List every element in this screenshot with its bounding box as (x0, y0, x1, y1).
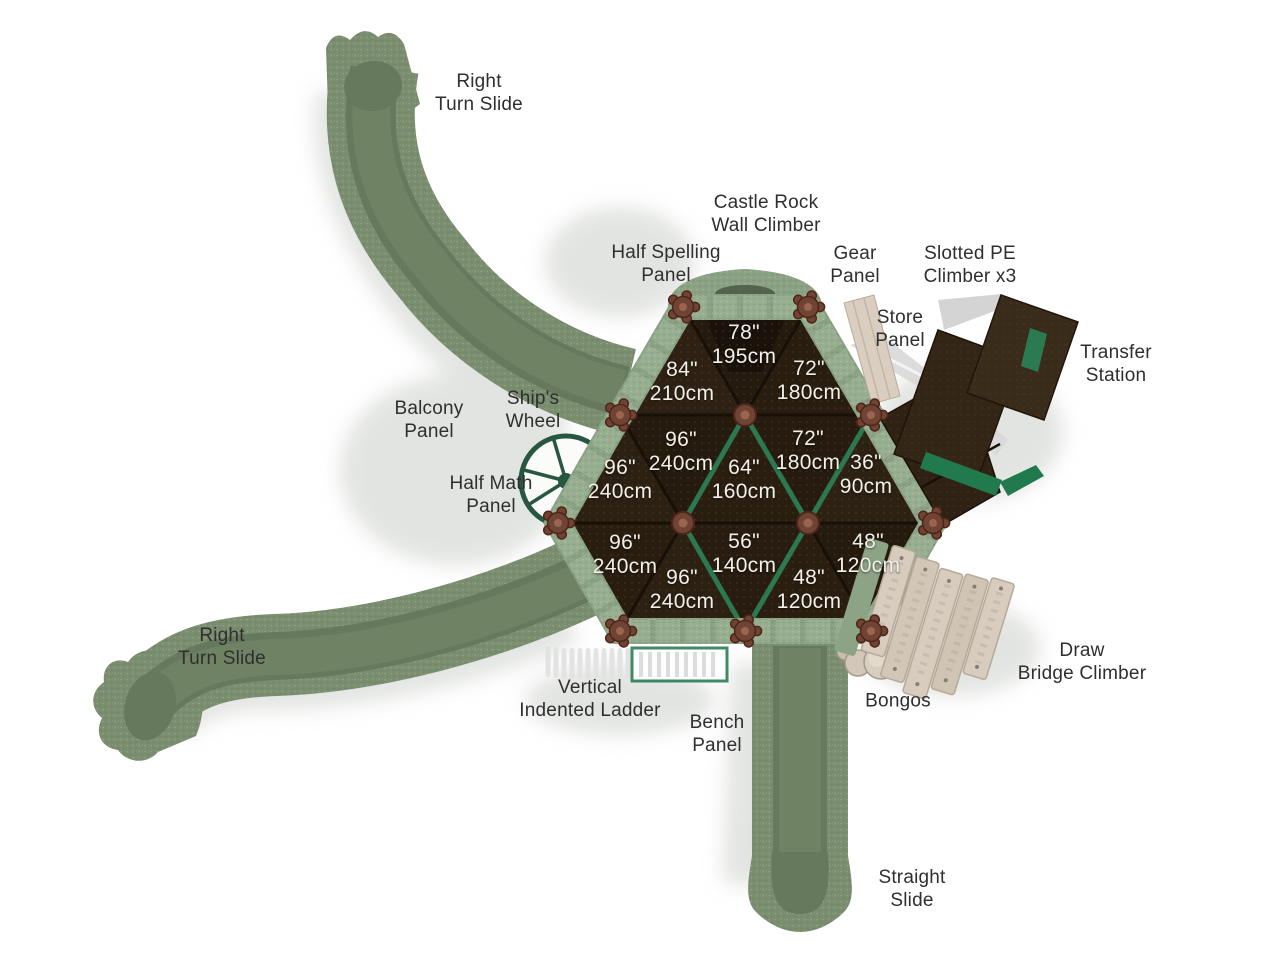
label-vertical-indented-ladder: Vertical Indented Ladder (519, 677, 660, 723)
deck-inches: 56" (712, 530, 777, 554)
deck-measurement: 84"210cm (650, 358, 715, 406)
vertical-indented-ladder (546, 646, 631, 679)
label-bench-panel: Bench Panel (690, 712, 745, 758)
deck-inches: 72" (777, 357, 842, 381)
label-ships-wheel: Ship's Wheel (506, 388, 561, 434)
label-bongos: Bongos (865, 691, 931, 714)
deck-inches: 64" (712, 456, 777, 480)
bench-panel (632, 648, 727, 681)
label-right-turn-slide-bottom: Right Turn Slide (178, 625, 266, 671)
deck-measurement: 64"160cm (712, 456, 777, 504)
deck-inches: 72" (776, 427, 841, 451)
label-castle-rock-wall-climber: Castle Rock Wall Climber (711, 192, 820, 238)
deck-measurement: 72"180cm (776, 427, 841, 475)
label-slotted-pe-climber: Slotted PE Climber x3 (924, 243, 1017, 289)
playground-top-view-diagram: Right Turn Slide Castle Rock Wall Climbe… (0, 0, 1280, 960)
deck-measurement: 96"240cm (593, 531, 658, 579)
right-turn-slide-bottom (93, 576, 584, 761)
deck-inches: 96" (593, 531, 658, 555)
deck-cm: 240cm (649, 452, 714, 476)
deck-cm: 240cm (593, 555, 658, 579)
label-half-spelling-panel: Half Spelling Panel (611, 242, 720, 288)
deck-cm: 195cm (712, 345, 777, 369)
deck-inches: 48" (836, 530, 901, 554)
deck-cm: 180cm (776, 451, 841, 475)
deck-measurement: 48"120cm (777, 566, 842, 614)
deck-measurement: 96"240cm (649, 428, 714, 476)
deck-inches: 96" (650, 566, 715, 590)
label-right-turn-slide-top: Right Turn Slide (435, 71, 523, 117)
deck-cm: 160cm (712, 480, 777, 504)
deck-cm: 120cm (836, 554, 901, 578)
deck-cm: 90cm (840, 475, 893, 499)
label-gear-panel: Gear Panel (830, 243, 880, 289)
deck-cm: 240cm (588, 480, 653, 504)
deck-measurement: 78"195cm (712, 321, 777, 369)
deck-cm: 120cm (777, 590, 842, 614)
deck-cm: 210cm (650, 382, 715, 406)
deck-measurement: 96"240cm (650, 566, 715, 614)
label-balcony-panel: Balcony Panel (395, 398, 464, 444)
deck-cm: 140cm (712, 554, 777, 578)
straight-slide (748, 640, 852, 932)
deck-measurement: 48"120cm (836, 530, 901, 578)
label-half-math-panel: Half Math Panel (449, 473, 532, 519)
deck-inches: 78" (712, 321, 777, 345)
label-transfer-station: Transfer Station (1080, 342, 1152, 388)
deck-measurement: 72"180cm (777, 357, 842, 405)
label-draw-bridge-climber: Draw Bridge Climber (1018, 640, 1146, 686)
label-straight-slide: Straight Slide (878, 867, 945, 913)
label-store-panel: Store Panel (875, 307, 925, 353)
deck-measurement: 36"90cm (840, 451, 893, 499)
deck-measurement: 96"240cm (588, 456, 653, 504)
deck-inches: 96" (649, 428, 714, 452)
deck-inches: 96" (588, 456, 653, 480)
deck-measurement: 56"140cm (712, 530, 777, 578)
deck-inches: 84" (650, 358, 715, 382)
deck-cm: 180cm (777, 381, 842, 405)
deck-inches: 36" (840, 451, 893, 475)
deck-inches: 48" (777, 566, 842, 590)
deck-cm: 240cm (650, 590, 715, 614)
